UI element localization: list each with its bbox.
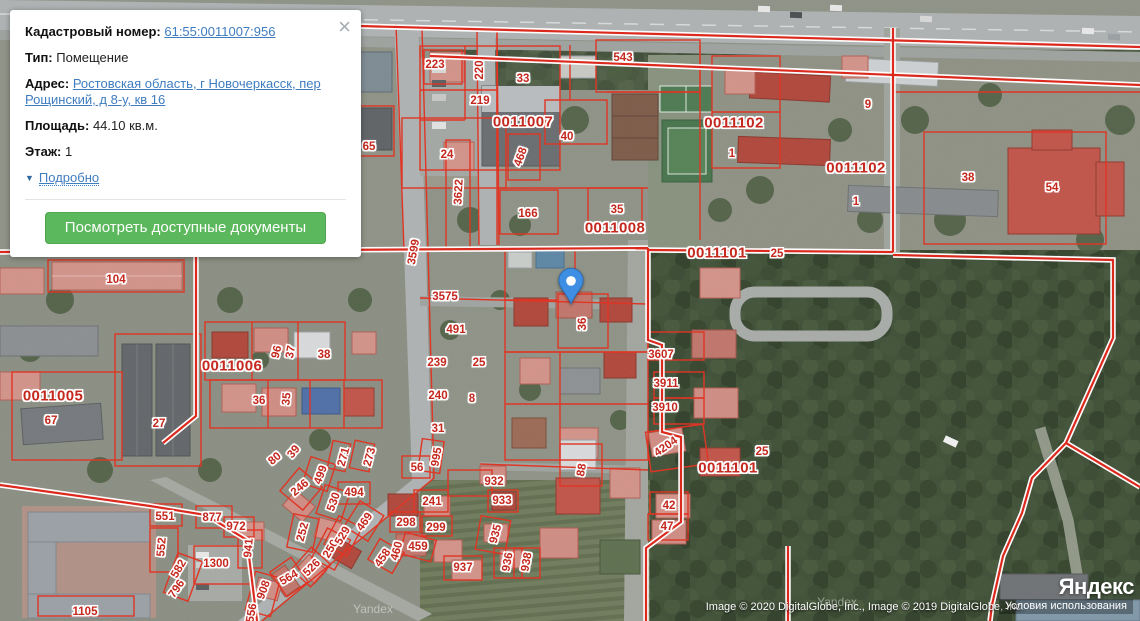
area-value: 44.10 кв.м.	[93, 118, 158, 133]
pin-icon	[557, 268, 585, 306]
area-label: Площадь:	[25, 118, 89, 133]
details-toggle[interactable]: ▼Подробно	[25, 170, 346, 186]
map-viewport[interactable]: 0011007001100800111010011102001110200111…	[0, 0, 1140, 621]
card-divider	[25, 199, 346, 200]
terms-of-use-link[interactable]: Условия использования	[999, 599, 1133, 614]
type-value: Помещение	[56, 50, 128, 65]
type-label: Тип:	[25, 50, 53, 65]
area-row: Площадь: 44.10 кв.м.	[25, 118, 346, 134]
copyright-attribution: Image © 2020 DigitalGlobe, Inc., Image ©…	[706, 601, 1024, 613]
details-link[interactable]: Подробно	[39, 170, 99, 186]
close-icon[interactable]: ×	[338, 18, 351, 36]
floor-value: 1	[65, 144, 72, 159]
cadastral-number-row: Кадастровый номер: 61:55:0011007:956	[25, 24, 346, 40]
floor-row: Этаж: 1	[25, 144, 346, 160]
floor-label: Этаж:	[25, 144, 61, 159]
view-documents-button[interactable]: Посмотреть доступные документы	[45, 212, 326, 244]
chevron-down-icon: ▼	[25, 173, 34, 183]
address-link[interactable]: Ростовская область, г Новочеркасск, пер …	[25, 76, 321, 107]
address-label: Адрес:	[25, 76, 69, 91]
address-row: Адрес: Ростовская область, г Новочеркасс…	[25, 76, 346, 108]
type-row: Тип: Помещение	[25, 50, 346, 66]
yandex-logo[interactable]: Яндекс	[1059, 574, 1134, 600]
cadastral-number-link[interactable]: 61:55:0011007:956	[164, 24, 275, 39]
cadastral-info-popup: × Кадастровый номер: 61:55:0011007:956 Т…	[10, 10, 361, 257]
cadastral-number-label: Кадастровый номер:	[25, 24, 161, 39]
